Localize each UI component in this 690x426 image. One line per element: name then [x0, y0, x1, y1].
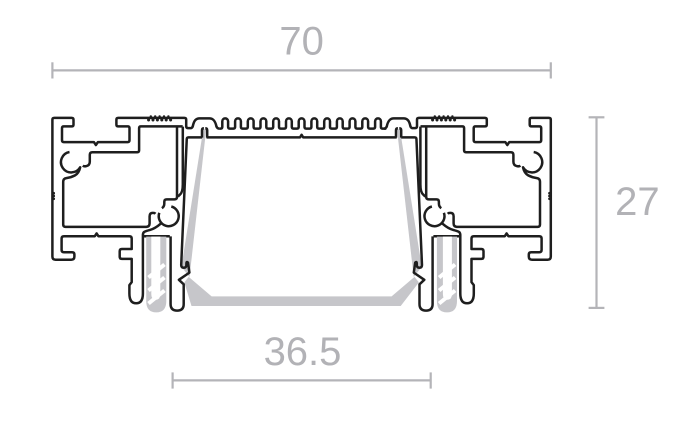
svg-text:27: 27: [615, 180, 660, 224]
svg-text:70: 70: [279, 20, 324, 64]
svg-text:36.5: 36.5: [264, 330, 342, 374]
